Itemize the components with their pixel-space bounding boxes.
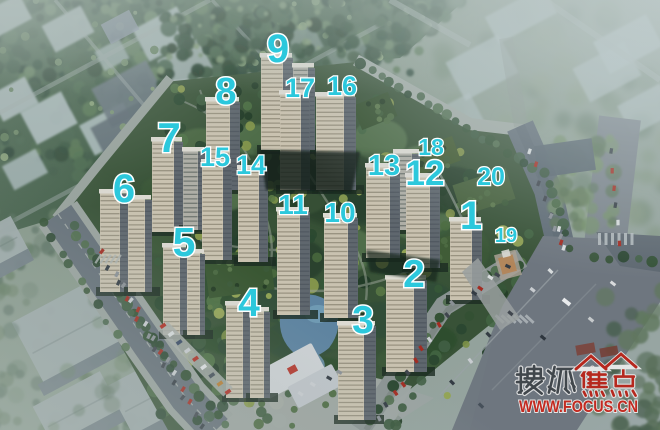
- svg-text:19: 19: [495, 225, 517, 247]
- svg-text:16: 16: [327, 71, 357, 101]
- svg-text:20: 20: [477, 163, 505, 191]
- svg-text:14: 14: [236, 150, 266, 180]
- svg-text:2: 2: [403, 253, 425, 296]
- svg-text:3: 3: [352, 299, 374, 342]
- svg-text:9: 9: [267, 27, 289, 71]
- svg-text:15: 15: [200, 142, 230, 172]
- svg-text:5: 5: [173, 219, 196, 265]
- svg-text:12: 12: [406, 154, 445, 193]
- svg-text:7: 7: [157, 114, 180, 161]
- svg-text:6: 6: [113, 167, 135, 211]
- svg-text:4: 4: [238, 282, 260, 325]
- svg-text:11: 11: [278, 189, 308, 220]
- svg-text:WWW.FOCUS.CN: WWW.FOCUS.CN: [519, 397, 638, 416]
- svg-text:13: 13: [368, 150, 400, 182]
- svg-text:10: 10: [324, 197, 355, 228]
- svg-text:8: 8: [215, 71, 236, 113]
- svg-text:1: 1: [460, 194, 482, 238]
- svg-text:17: 17: [285, 73, 315, 103]
